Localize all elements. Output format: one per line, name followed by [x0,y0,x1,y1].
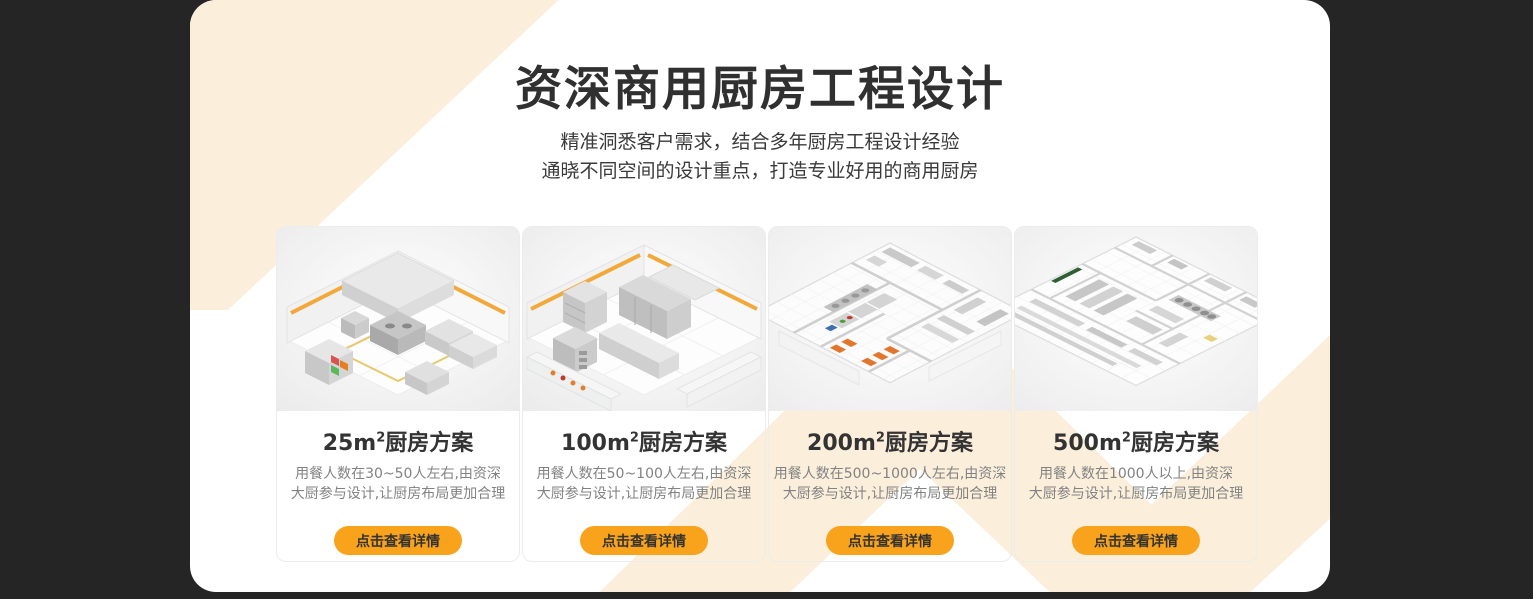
card-title: 200m2厨房方案 [769,425,1011,457]
subtitle-line-1: 精准洞悉客户需求，结合多年厨房工程设计经验 [560,131,959,153]
kitchen-plan-card-200sqm[interactable]: 200m2厨房方案 用餐人数在500~1000人左右,由资深大厨参与设计,让厨房… [768,226,1012,562]
card-description: 用餐人数在50~100人左右,由资深大厨参与设计,让厨房布局更加合理 [523,464,765,504]
kitchen-plan-card-100sqm[interactable]: 100m2厨房方案 用餐人数在50~100人左右,由资深大厨参与设计,让厨房布局… [522,226,766,562]
content-panel: 资深商用厨房工程设计 精准洞悉客户需求，结合多年厨房工程设计经验 通晓不同空间的… [190,0,1330,592]
section-subtitle: 精准洞悉客户需求，结合多年厨房工程设计经验 通晓不同空间的设计重点，打造专业好用… [190,128,1330,186]
subtitle-line-2: 通晓不同空间的设计重点，打造专业好用的商用厨房 [541,160,978,182]
view-details-button[interactable]: 点击查看详情 [1072,526,1200,555]
card-description: 用餐人数在500~1000人左右,由资深大厨参与设计,让厨房布局更加合理 [769,464,1011,504]
kitchen-100sqm-render [523,227,765,411]
card-title: 500m2厨房方案 [1015,425,1257,457]
kitchen-25sqm-render [277,227,519,411]
view-details-button[interactable]: 点击查看详情 [826,526,954,555]
kitchen-plan-card-row: 25m2厨房方案 用餐人数在30~50人左右,由资深大厨参与设计,让厨房布局更加… [276,226,1260,562]
card-title: 100m2厨房方案 [523,425,765,457]
kitchen-200sqm-render [769,227,1011,411]
section-title: 资深商用厨房工程设计 [190,50,1330,119]
card-description: 用餐人数在1000人以上,由资深大厨参与设计,让厨房布局更加合理 [1015,464,1257,504]
kitchen-plan-card-500sqm[interactable]: 500m2厨房方案 用餐人数在1000人以上,由资深大厨参与设计,让厨房布局更加… [1014,226,1258,562]
card-description: 用餐人数在30~50人左右,由资深大厨参与设计,让厨房布局更加合理 [277,464,519,504]
card-title: 25m2厨房方案 [277,425,519,457]
view-details-button[interactable]: 点击查看详情 [580,526,708,555]
view-details-button[interactable]: 点击查看详情 [334,526,462,555]
kitchen-plan-card-25sqm[interactable]: 25m2厨房方案 用餐人数在30~50人左右,由资深大厨参与设计,让厨房布局更加… [276,226,520,562]
kitchen-500sqm-render [1015,227,1257,411]
